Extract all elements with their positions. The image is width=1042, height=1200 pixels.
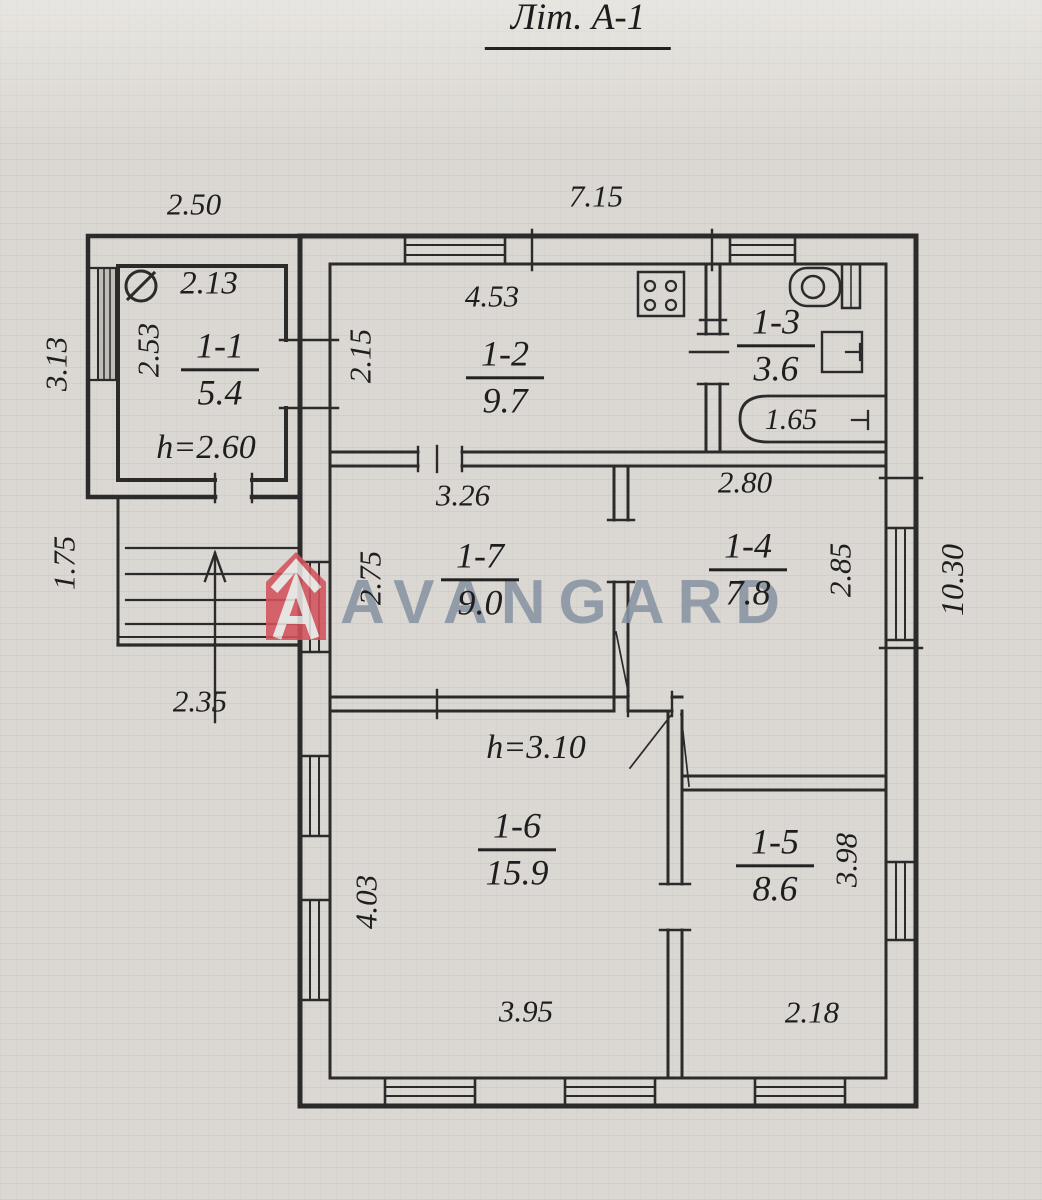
room-label-1-7: 1-7 9.0 xyxy=(441,537,519,622)
room-area: 3.6 xyxy=(754,347,799,389)
dim-porch-left-height: 1.75 xyxy=(49,536,80,590)
room-area: 9.7 xyxy=(483,379,528,421)
room-number: 1-4 xyxy=(709,527,787,571)
room-label-1-4: 1-4 7.8 xyxy=(709,527,787,612)
room-number: 1-7 xyxy=(441,537,519,581)
dim-bath-length: 1.65 xyxy=(765,405,818,435)
dim-room17-width: 3.26 xyxy=(436,480,490,511)
room-number: 1-3 xyxy=(737,303,815,347)
dim-room16-depth: 4.03 xyxy=(351,875,382,929)
floorplan-page: AVANGARD Літ. А-1 2.50 7.15 2.13 2.53 h=… xyxy=(0,0,1042,1200)
dim-room17-depth: 2.75 xyxy=(355,551,386,605)
room-area: 7.8 xyxy=(726,571,771,613)
room-area: 15.9 xyxy=(486,851,549,893)
dim-porch-width: 2.35 xyxy=(173,686,227,717)
room-label-1-5: 1-5 8.6 xyxy=(736,823,814,908)
room-area: 8.6 xyxy=(753,867,798,909)
room-label-1-2: 1-2 9.7 xyxy=(466,335,544,420)
dim-room12-depth: 2.15 xyxy=(345,329,376,383)
dim-annex-left-height: 3.13 xyxy=(41,337,72,391)
dim-room16-width: 3.95 xyxy=(499,996,553,1027)
dim-room14-depth: 2.85 xyxy=(825,543,856,597)
room-number: 1-1 xyxy=(181,327,259,371)
dim-room15-depth: 3.98 xyxy=(831,833,862,887)
room-number: 1-6 xyxy=(478,807,556,851)
room-area: 9.0 xyxy=(458,581,503,623)
dim-room14-width: 2.80 xyxy=(718,467,772,498)
labels-layer: Літ. А-1 2.50 7.15 2.13 2.53 h=2.60 3.13… xyxy=(0,0,1042,1200)
dim-room11-depth: 2.53 xyxy=(133,323,164,377)
dim-room11-ceiling-height: h=2.60 xyxy=(156,431,255,465)
page-title: Літ. А-1 xyxy=(485,0,671,50)
room-number: 1-2 xyxy=(466,335,544,379)
room-label-1-6: 1-6 15.9 xyxy=(478,807,556,892)
dim-room12-width: 4.53 xyxy=(465,281,519,312)
dim-top-main: 7.15 xyxy=(569,181,623,212)
dim-top-annex: 2.50 xyxy=(167,189,221,220)
dim-room15-width: 2.18 xyxy=(785,997,839,1028)
room-label-1-3: 1-3 3.6 xyxy=(737,303,815,388)
room-label-1-1: 1-1 5.4 xyxy=(181,327,259,412)
room-area: 5.4 xyxy=(198,371,243,413)
dim-main-ceiling-height: h=3.10 xyxy=(486,731,585,765)
dim-room11-width: 2.13 xyxy=(180,268,238,301)
room-number: 1-5 xyxy=(736,823,814,867)
dim-main-right-height: 10.30 xyxy=(936,544,968,616)
